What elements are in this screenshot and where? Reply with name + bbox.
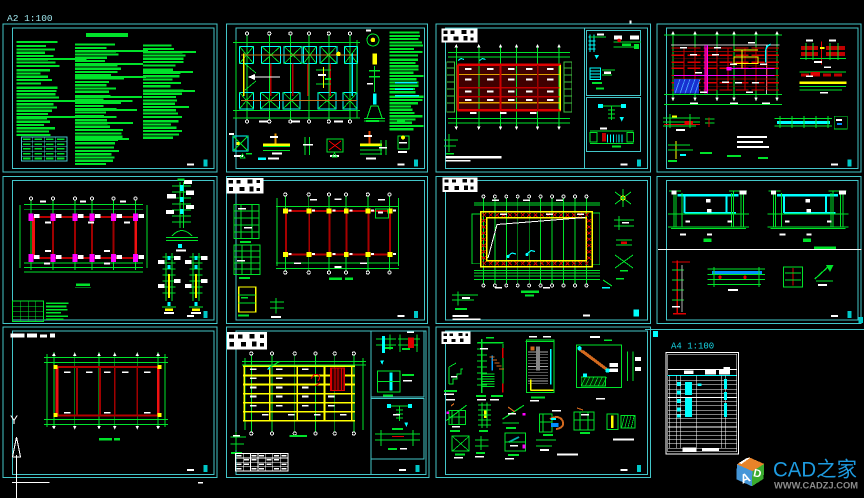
svg-text:CAD之家: CAD之家 — [773, 459, 857, 482]
svg-text:WWW.CADZJ.COM: WWW.CADZJ.COM — [774, 481, 858, 491]
svg-text:A4 1:100: A4 1:100 — [671, 342, 714, 352]
svg-text:A2 1:100: A2 1:100 — [7, 13, 53, 24]
svg-text:Y: Y — [10, 413, 18, 427]
